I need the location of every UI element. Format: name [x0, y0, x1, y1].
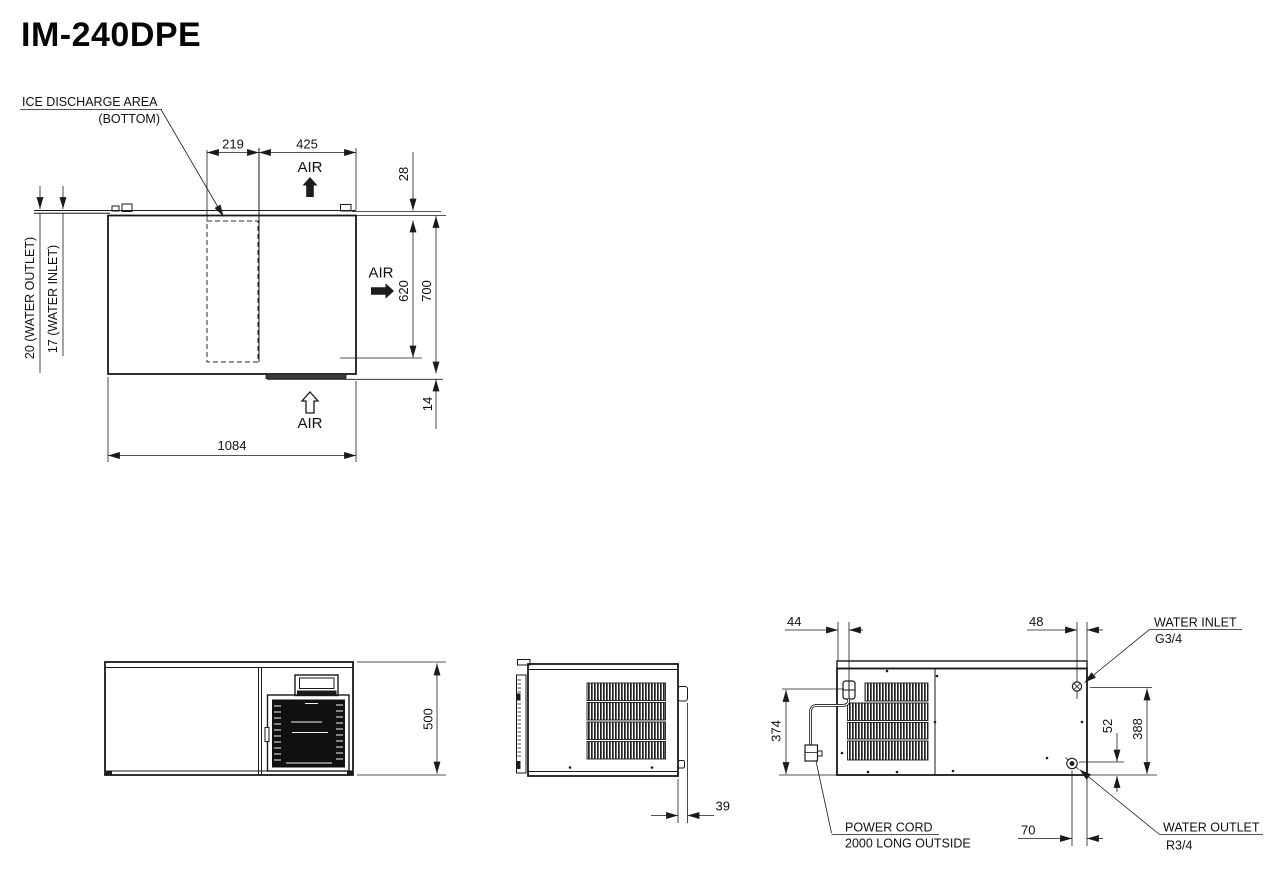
- top-view: ICE DISCHARGE AREA (BOTTOM) 219 425 AIR …: [20, 95, 446, 462]
- ice-discharge-label: ICE DISCHARGE AREA: [22, 95, 158, 109]
- air-arrow-up-outline-icon: [302, 392, 318, 413]
- dim-air-depth: 620: [396, 280, 411, 302]
- screw-dot: [569, 766, 572, 769]
- air-flow-bottom: AIR: [297, 392, 322, 432]
- rear-fittings-profile: [678, 687, 688, 769]
- leader-line: [1085, 630, 1150, 683]
- water-outlet-thread: R3/4: [1166, 839, 1192, 853]
- dim-inlet-offset-text: 48: [1029, 614, 1043, 629]
- ice-discharge-callout: ICE DISCHARGE AREA (BOTTOM): [20, 95, 224, 217]
- ice-discharge-area-outline: [207, 221, 258, 362]
- dim-height-500: 500: [357, 662, 446, 775]
- dim-outlet-height-text: 52: [1100, 719, 1115, 733]
- dim-front-offset: 14: [420, 397, 435, 411]
- grille-handle: [265, 728, 269, 742]
- air-flow-side: AIR: [368, 265, 394, 299]
- air-flow-top: AIR: [297, 159, 322, 197]
- dim-cord-offset-44: 44: [785, 614, 863, 681]
- front-louver-slot: [266, 374, 346, 379]
- dim-air-width: 425: [296, 137, 318, 152]
- front-view: 500: [105, 662, 446, 775]
- screw-dot: [651, 766, 654, 769]
- water-inlet-thread: G3/4: [1155, 632, 1182, 646]
- water-outlet-label: WATER OUTLET: [1163, 821, 1260, 835]
- air-label-bottom: AIR: [297, 415, 322, 432]
- page-title: IM-240DPE: [21, 16, 201, 54]
- front-control-box: [295, 675, 338, 696]
- dim-water-connections: 20 (WATER OUTLET) 17 (WATER INLET): [23, 186, 63, 373]
- dim-protrusion-39: 39: [651, 703, 730, 823]
- drawing-sheet: IM-240DPE ICE DISCHARGE AREA (BOTTOM): [0, 0, 1270, 891]
- ice-discharge-sublabel: (BOTTOM): [98, 112, 160, 126]
- power-cord-note: 2000 LONG OUTSIDE: [845, 837, 971, 851]
- dim-water-outlet-pos: 20 (WATER OUTLET): [23, 237, 37, 359]
- air-label-side: AIR: [368, 265, 393, 282]
- dimensional-drawing: IM-240DPE ICE DISCHARGE AREA (BOTTOM): [0, 0, 1270, 891]
- rear-view-body: [779, 661, 1157, 775]
- dim-protrusion-text: 39: [716, 799, 730, 814]
- dim-rear-offset: 28: [396, 167, 411, 181]
- side-view: 39: [517, 660, 730, 824]
- rear-view: POWER CORD 2000 LONG OUTSIDE WATER INLET…: [769, 614, 1264, 853]
- dim-height-text: 500: [421, 708, 436, 730]
- dim-cord-offset-text: 44: [787, 614, 801, 629]
- air-arrow-up-icon: [303, 177, 318, 197]
- air-arrow-right-icon: [371, 283, 394, 298]
- dim-depth: 700: [419, 280, 434, 302]
- water-inlet-label: WATER INLET: [1154, 616, 1237, 630]
- leader-line: [161, 110, 224, 217]
- foot: [347, 772, 353, 776]
- water-inlet-assembly: WATER INLET G3/4: [1072, 616, 1242, 700]
- dim-overall-width-text: 1084: [218, 438, 247, 453]
- rear-grille: [848, 683, 929, 760]
- air-label-top: AIR: [297, 159, 322, 176]
- dim-outlet-height-52: 52: [1079, 719, 1124, 792]
- foot: [106, 772, 112, 776]
- leader-line: [1080, 770, 1160, 835]
- side-grille: [587, 683, 666, 759]
- dim-discharge-width: 219: [222, 137, 244, 152]
- dim-219-425: 219 425: [207, 137, 356, 222]
- front-grille: [265, 695, 349, 771]
- power-plug-icon: [805, 745, 818, 761]
- rail-ticks: [518, 680, 522, 756]
- dim-outlet-offset-text: 70: [1021, 823, 1035, 838]
- power-cord-label: POWER CORD: [845, 821, 933, 835]
- dim-cord-height-text: 374: [769, 720, 784, 742]
- dim-inlet-offset-48: 48: [1027, 614, 1103, 661]
- dim-inlet-height-text: 388: [1130, 718, 1145, 740]
- bin-mount-rail: [517, 675, 527, 773]
- dim-outlet-offset-70: 70: [1018, 775, 1103, 846]
- dim-water-inlet-pos: 17 (WATER INLET): [46, 245, 60, 353]
